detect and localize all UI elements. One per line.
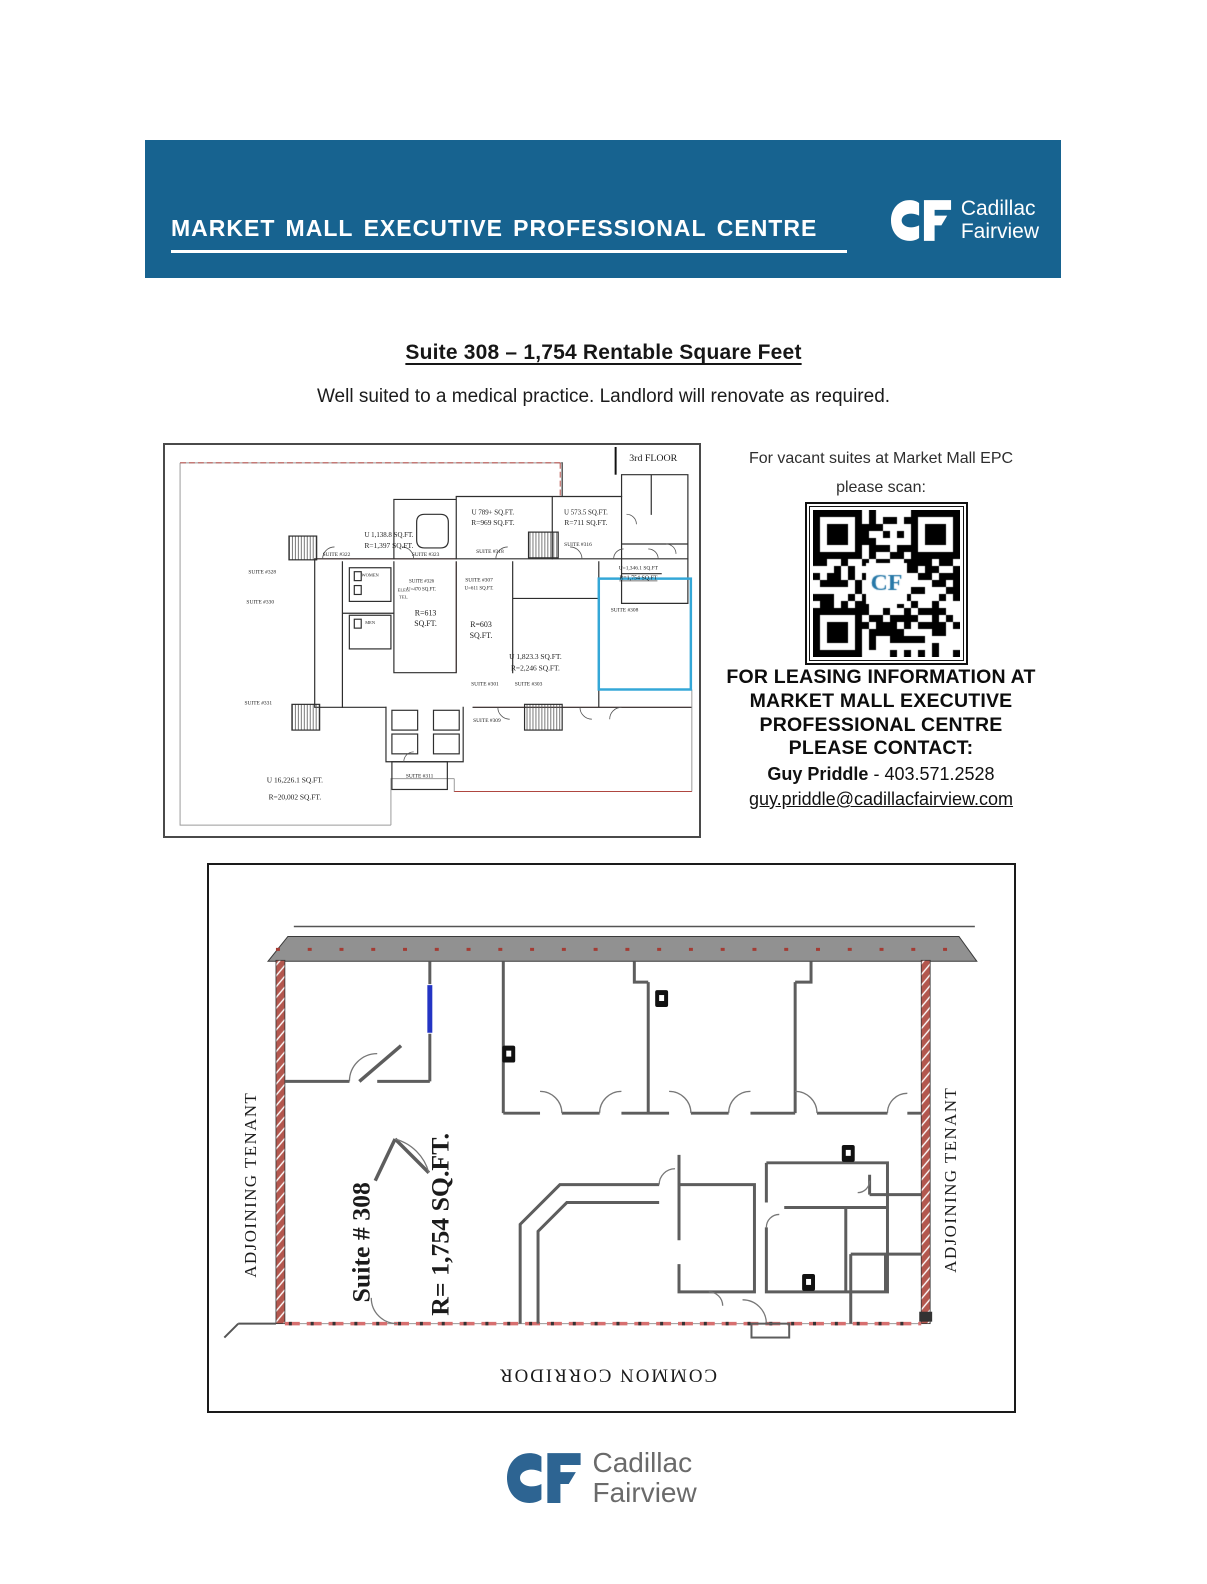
floor-label: 3rd FLOOR (629, 453, 677, 464)
contact-email-link[interactable]: guy.priddle@cadillacfairview.com (700, 789, 1062, 810)
suite-308-plan: ADJOINING TENANT ADJOINING TENANT Suite … (207, 863, 1016, 1413)
plan-label: TEL. (399, 594, 408, 599)
plan-label: R=613 (415, 608, 437, 617)
plan-label: R=1,397 SQ.FT. (364, 541, 413, 550)
adjoining-tenant-left-label: ADJOINING TENANT (241, 1092, 260, 1278)
leasing-heading: FOR LEASING INFORMATION AT MARKET MALL E… (700, 666, 1062, 761)
suite-308-highlight (599, 579, 691, 690)
floor-plan-overview-svg: 3rd FLOOR U 789+ SQ.FT.R=969 SQ.FT.U 573… (165, 445, 699, 836)
plan-label: U 573.5 SQ.FT. (564, 509, 608, 516)
outlet-icon (655, 990, 668, 1007)
plan-label: SUITE #328 (248, 570, 276, 576)
common-corridor-label: COMMON CORRIDOR (498, 1364, 717, 1385)
outlet-icon (802, 1274, 815, 1291)
cadillac-fairview-logo: Cadillac Fairview (891, 198, 1039, 243)
footer-logo: Cadillac Fairview (506, 1448, 696, 1507)
suite-area-label: R= 1,754 SQ.FT. (426, 1133, 455, 1316)
cf-monogram-icon (891, 198, 953, 243)
qr-frame (805, 502, 968, 665)
plan-label: U=470 SQ.FT. (407, 588, 436, 593)
scan-text-line2: please scan: (705, 479, 1057, 497)
leasing-line4: PLEASE CONTACT: (700, 737, 1062, 761)
left-demising-wall (276, 960, 285, 1323)
fixture-icons (502, 990, 854, 1291)
entry-door-leaves (359, 1046, 428, 1181)
plan-label: SUITE #301 (471, 682, 499, 688)
outlet-icon (502, 1046, 515, 1063)
plan-label: U=1,346.1 SQ.FT (619, 566, 659, 572)
leasing-line1: FOR LEASING INFORMATION AT (700, 666, 1062, 690)
footer-logo-line1: Cadillac (592, 1448, 696, 1478)
plan-label: SUITE #309 (473, 718, 501, 724)
plan-label: R=2,246 SQ.FT. (511, 664, 560, 673)
contact-phone: - 403.571.2528 (868, 764, 994, 784)
plan-label: SUITE #308 (611, 607, 639, 613)
plan-label: MEN (365, 620, 376, 625)
plan-label: SQ.FT. (470, 631, 493, 640)
page-title: Suite 308 – 1,754 Rentable Square Feet (0, 341, 1207, 365)
plan-label: SUITE #307 (465, 578, 493, 584)
scan-text-line1: For vacant suites at Market Mall EPC (705, 450, 1057, 468)
plan-label: SUITE #330 (246, 599, 274, 605)
contact-line: Guy Priddle - 403.571.2528 (700, 764, 1062, 785)
plan-label: SUITE #322 (323, 552, 351, 558)
header-banner: Market Mall Executive Professional Centr… (145, 140, 1061, 278)
suite-interior-walls (285, 961, 921, 1323)
plan-label: R=603 (470, 620, 492, 629)
plan-label: SUITE #331 (244, 700, 272, 706)
plan-label: SUITE #326 (409, 580, 435, 585)
plan-label: U 1,138.8 SQ.FT. (364, 532, 413, 539)
leasing-line2: MARKET MALL EXECUTIVE (700, 690, 1062, 714)
logo-line2: Fairview (961, 221, 1039, 243)
floor-plan-overview: 3rd FLOOR U 789+ SQ.FT.R=969 SQ.FT.U 573… (163, 443, 701, 838)
suite-308-plan-svg: ADJOINING TENANT ADJOINING TENANT Suite … (209, 865, 1014, 1411)
footer-logo-line2: Fairview (592, 1478, 696, 1508)
leasing-line3: PROFESSIONAL CENTRE (700, 714, 1062, 738)
plan-label: SUITE #323 (412, 552, 440, 558)
banner-title: Market Mall Executive Professional Centr… (171, 206, 817, 244)
cf-monogram-icon (506, 1450, 582, 1506)
plan-label: SQ.FT. (414, 619, 437, 628)
banner-underline (171, 250, 847, 253)
plan-label: U 789+ SQ.FT. (472, 509, 515, 516)
plan-label: R=711 SQ.FT. (564, 518, 607, 527)
page-subtitle: Well suited to a medical practice. Landl… (0, 386, 1207, 408)
plan-label: SUITE #303 (515, 682, 543, 688)
plan-label: SUITE #318 (476, 549, 504, 555)
plan-label: R=969 SQ.FT. (471, 518, 514, 527)
plan-label: R=1,754 SQ.FT (619, 576, 657, 582)
corridor-step (751, 1324, 789, 1338)
plan-label: SUITE #316 (564, 542, 592, 548)
logo-line1: Cadillac (961, 198, 1039, 220)
right-demising-wall (921, 960, 930, 1323)
contact-name: Guy Priddle (767, 764, 868, 784)
plan-label: U 1,823.3 SQ.FT. (509, 652, 562, 661)
plan-label: R=20,002 SQ.FT. (269, 792, 322, 801)
plan-label: U=611 SQ.FT. (465, 587, 494, 592)
plan-label: SUITE #311 (406, 774, 434, 780)
bottom-corridor-wall (224, 1312, 932, 1338)
vacant-area-outline (180, 463, 692, 825)
suite-number-label: Suite # 308 (346, 1182, 375, 1302)
plan-label: U 16,226.1 SQ.FT. (267, 776, 323, 785)
adjoining-tenant-right-label: ADJOINING TENANT (941, 1087, 960, 1273)
qr-code (813, 510, 960, 657)
plan-label: WOMEN (362, 573, 380, 578)
outlet-icon (842, 1145, 855, 1162)
